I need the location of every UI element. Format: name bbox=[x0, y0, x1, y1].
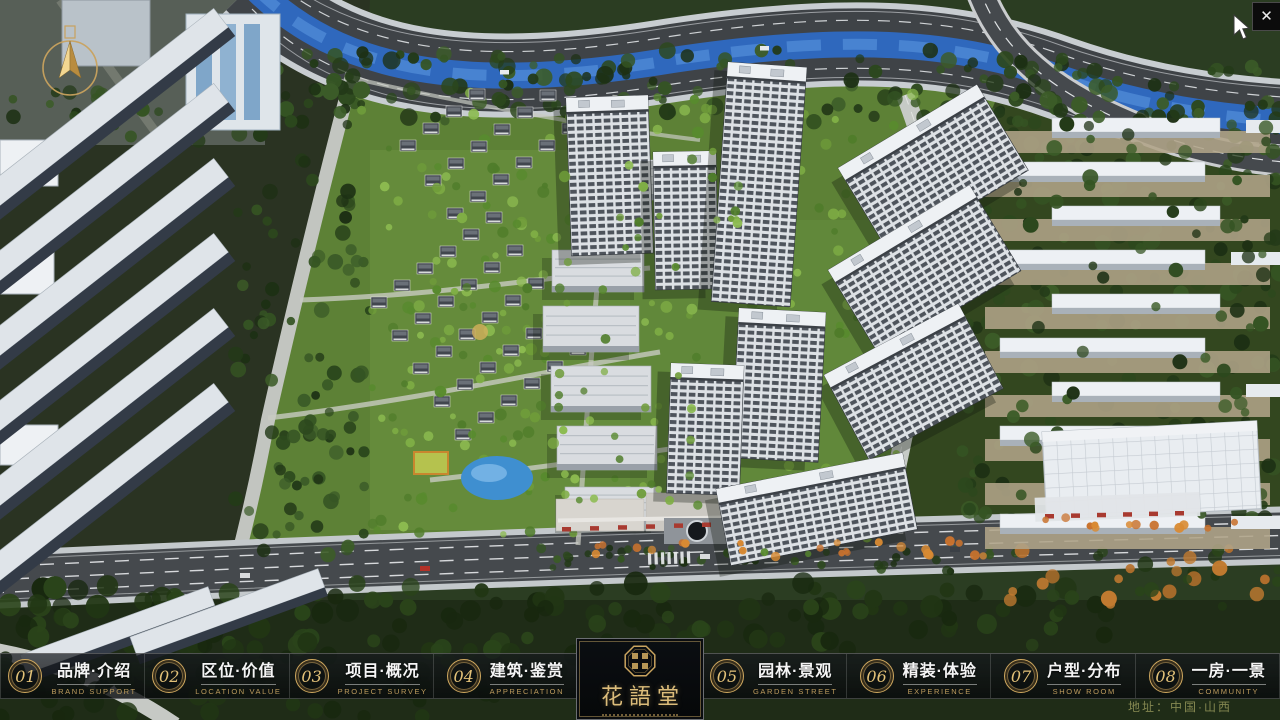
nav-label-en: SHOW ROOM bbox=[1053, 687, 1116, 696]
logo-title: 花語堂 bbox=[601, 679, 685, 711]
nav-label-zh: 建筑·鉴赏 bbox=[490, 657, 564, 685]
nav-label-en: EXPERIENCE bbox=[908, 687, 972, 696]
project-logo-panel[interactable]: 花語堂 bbox=[576, 638, 704, 720]
project-address: 地址：中国·山西 bbox=[1128, 698, 1232, 715]
nav-label-zh: 户型·分布 bbox=[1047, 657, 1121, 685]
nav-label-en: GARDEN STREET bbox=[753, 687, 838, 696]
nav-item-architecture[interactable]: 04 建筑·鉴赏 APPRECIATION bbox=[434, 654, 578, 698]
nav-number-badge: 08 bbox=[1149, 659, 1183, 693]
nav-number-badge: 05 bbox=[710, 659, 744, 693]
close-button[interactable]: ✕ bbox=[1252, 2, 1280, 31]
nav-number-badge: 07 bbox=[1004, 659, 1038, 693]
nav-label-en: COMMUNITY bbox=[1198, 687, 1259, 696]
nav-item-room-view[interactable]: 08 一房·一景 COMMUNITY bbox=[1136, 654, 1280, 698]
nav-label-en: BRAND SUPPORT bbox=[51, 687, 136, 696]
nav-label-zh: 区位·价值 bbox=[201, 657, 275, 685]
nav-item-location-value[interactable]: 02 区位·价值 LOCATION VALUE bbox=[145, 654, 289, 698]
nav-number-badge: 02 bbox=[152, 659, 186, 693]
mouse-cursor bbox=[1233, 14, 1253, 42]
nav-item-decoration-experience[interactable]: 06 精装·体验 EXPERIENCE bbox=[847, 654, 992, 698]
presentation-window: ✕ 01 品牌·介绍 BRAND SUPPORT 02 区位·价值 LOCATI… bbox=[0, 0, 1280, 720]
seal-icon bbox=[623, 644, 657, 678]
nav-label-zh: 一房·一景 bbox=[1192, 657, 1266, 685]
nav-item-garden-landscape[interactable]: 05 园林·景观 GARDEN STREET bbox=[702, 654, 847, 698]
nav-group-left: 01 品牌·介绍 BRAND SUPPORT 02 区位·价值 LOCATION… bbox=[0, 654, 578, 698]
nav-label-en: PROJECT SURVEY bbox=[338, 687, 428, 696]
site-map-3d-view[interactable] bbox=[0, 0, 1280, 720]
nav-label-en: APPRECIATION bbox=[490, 687, 565, 696]
nav-label-zh: 精装·体验 bbox=[903, 657, 977, 685]
close-icon: ✕ bbox=[1260, 9, 1273, 24]
nav-item-project-survey[interactable]: 03 项目·概况 PROJECT SURVEY bbox=[290, 654, 434, 698]
nav-label-zh: 园林·景观 bbox=[758, 657, 832, 685]
nav-label-zh: 项目·概况 bbox=[345, 657, 419, 685]
nav-item-brand-intro[interactable]: 01 品牌·介绍 BRAND SUPPORT bbox=[0, 654, 145, 698]
nav-label-zh: 品牌·介绍 bbox=[57, 657, 131, 685]
nav-number-badge: 03 bbox=[295, 659, 329, 693]
nav-number-badge: 04 bbox=[447, 659, 481, 693]
nav-item-floorplan-distribution[interactable]: 07 户型·分布 SHOW ROOM bbox=[991, 654, 1136, 698]
nav-group-right: 05 园林·景观 GARDEN STREET 06 精装·体验 EXPERIEN… bbox=[702, 654, 1280, 698]
logo-subtitle-rule bbox=[602, 714, 678, 716]
nav-label-en: LOCATION VALUE bbox=[195, 687, 281, 696]
compass-north-icon[interactable] bbox=[34, 24, 106, 108]
nav-number-badge: 06 bbox=[860, 659, 894, 693]
nav-number-badge: 01 bbox=[8, 659, 42, 693]
